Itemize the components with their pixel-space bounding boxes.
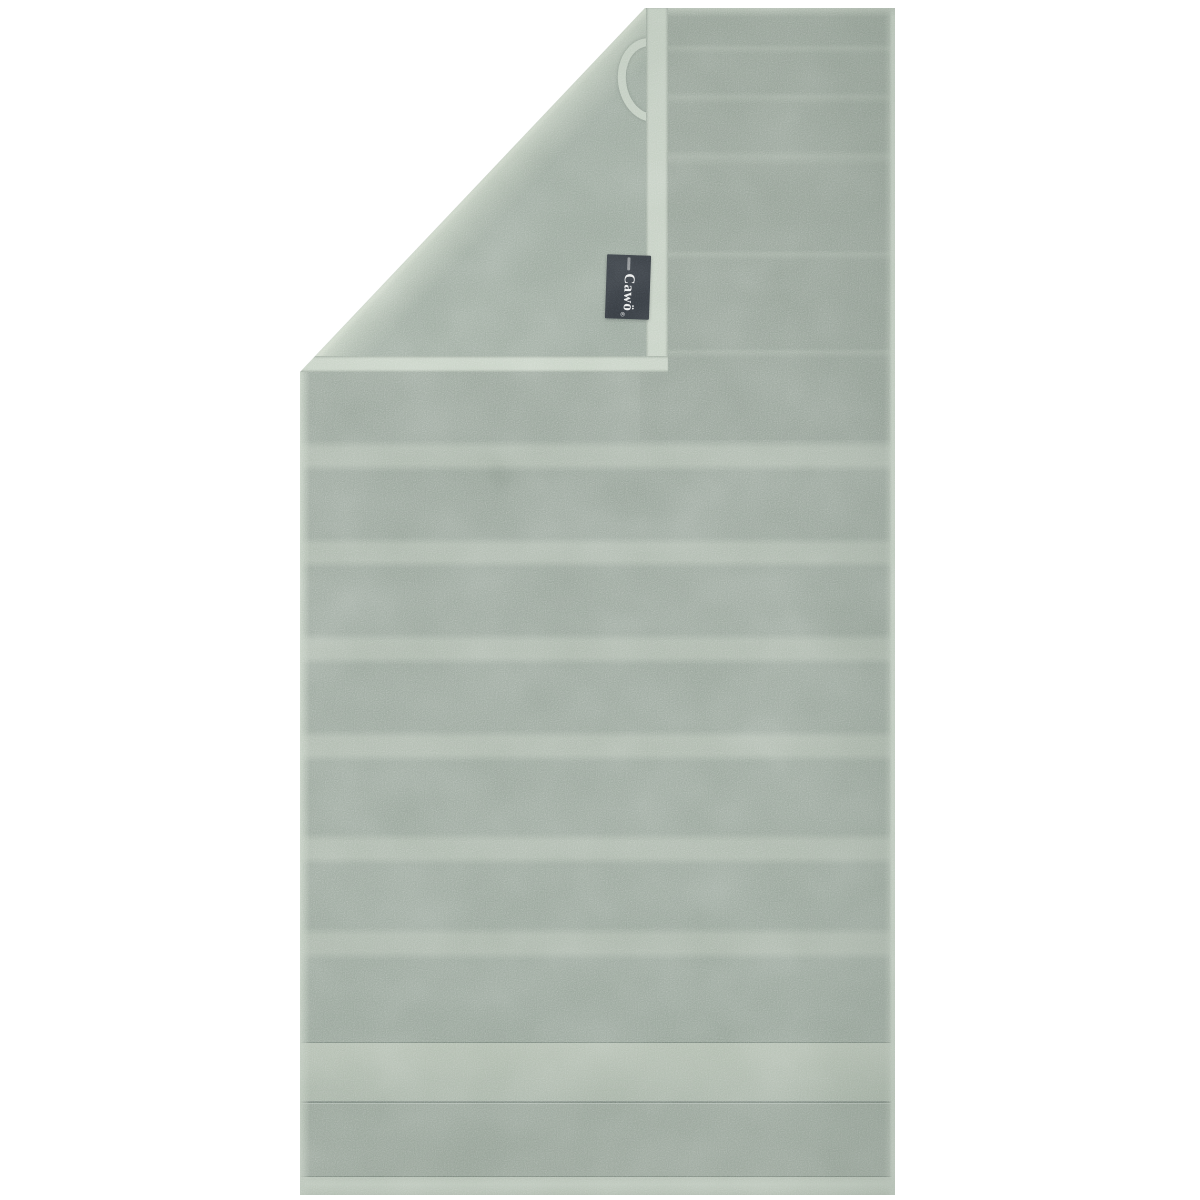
right-selvage-edge: [884, 8, 895, 1195]
border-band: [300, 1043, 895, 1101]
brand-tag: Cawö ®: [605, 254, 651, 319]
lower-terry-panel: [300, 1103, 895, 1177]
velour-stripe: [300, 633, 895, 665]
towel-folded-corner: Cawö ®: [300, 8, 668, 372]
top-edge-rim: [646, 8, 895, 17]
rib-ridge: [640, 150, 895, 166]
velour-stripe: [300, 440, 895, 472]
brand-tag-microtext: [627, 257, 630, 270]
velour-stripe: [300, 537, 895, 568]
front-top-shading: [640, 8, 895, 440]
left-selvage-edge: [300, 372, 310, 1195]
velour-stripe: [300, 833, 895, 865]
brand-tag-text: Cawö ®: [618, 257, 637, 317]
rib-ridge: [640, 250, 895, 260]
towel: Cawö ®: [300, 8, 895, 1195]
fold-crease-edge: [274, 6, 649, 402]
rib-ridge: [640, 348, 895, 358]
top-hem-band-folded: [300, 356, 668, 372]
bottom-hem: [300, 1177, 895, 1195]
velour-stripe: [300, 730, 895, 762]
product-photo: Cawö ®: [0, 0, 1200, 1200]
rib-ridge: [640, 44, 895, 54]
velour-stripe: [300, 927, 895, 960]
side-hem-band: [646, 8, 668, 372]
registered-trademark-symbol: ®: [618, 312, 624, 317]
rib-ridge: [640, 92, 895, 104]
brand-name: Cawö: [619, 273, 637, 311]
